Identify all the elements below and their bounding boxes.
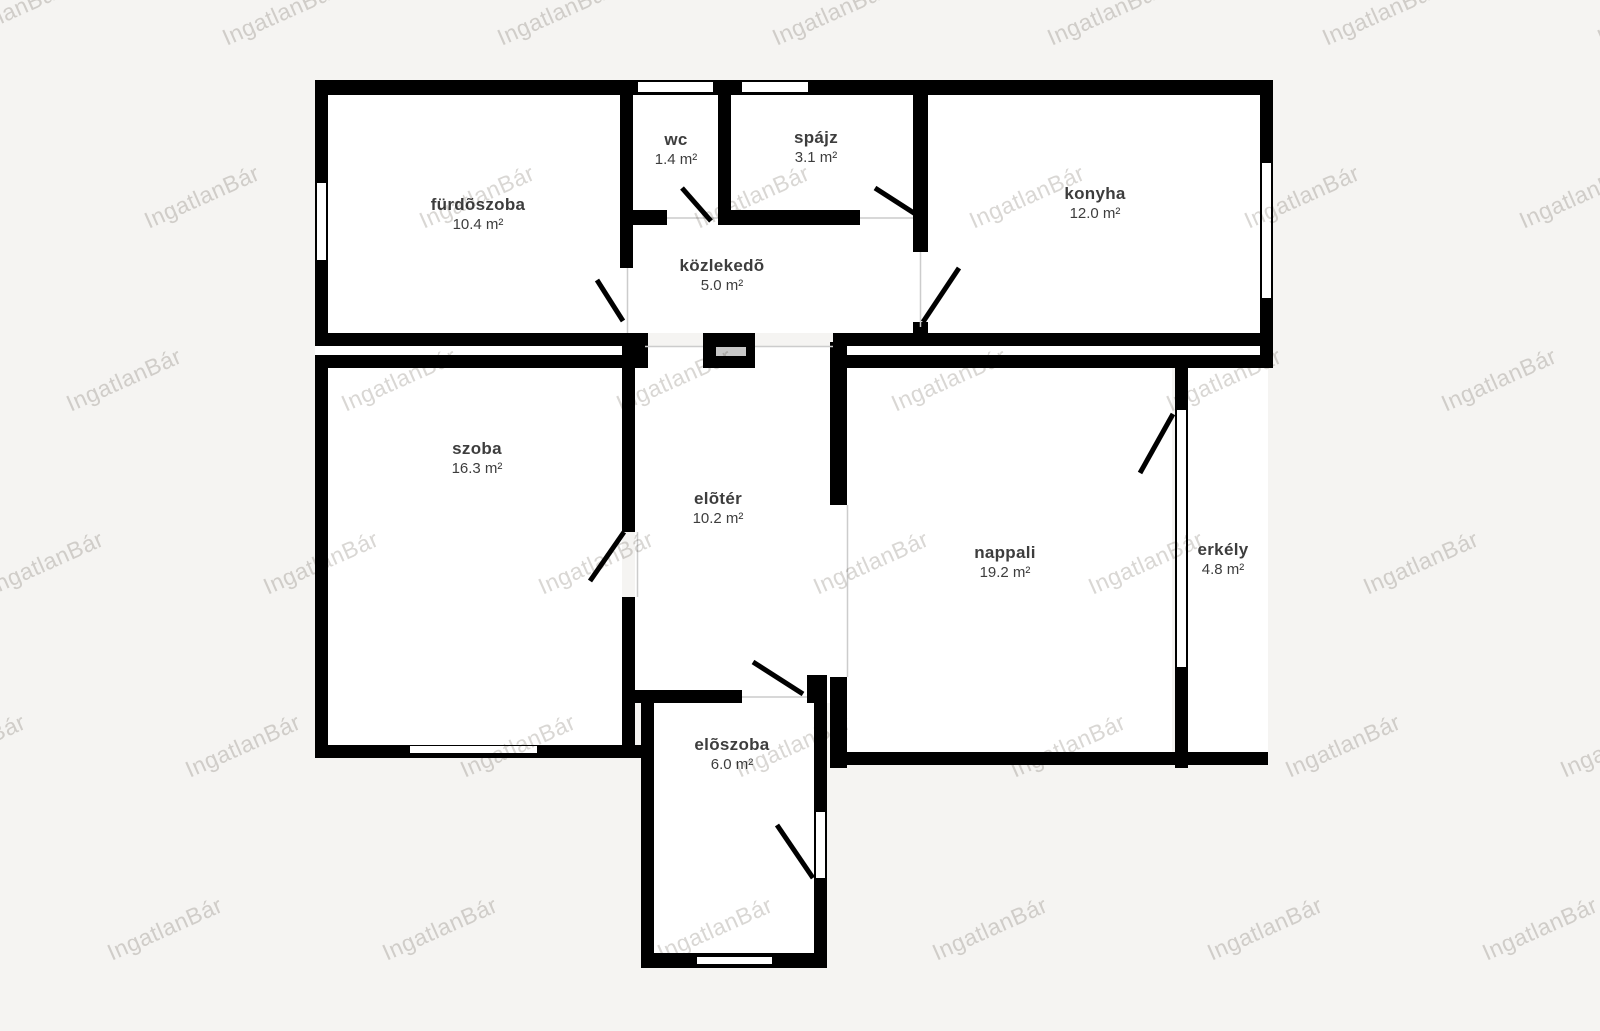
watermark-text: IngatlanBár bbox=[1318, 0, 1441, 51]
room-name: elõszoba bbox=[632, 735, 832, 755]
window-spajz-top bbox=[742, 82, 808, 92]
wall-szoba-top bbox=[315, 355, 648, 368]
wall-furdoszoba-wc bbox=[620, 93, 633, 268]
window-konyha-right bbox=[1262, 163, 1271, 298]
watermark-text: IngatlanBár bbox=[0, 709, 30, 784]
watermark-text: IngatlanBár bbox=[493, 0, 616, 51]
watermark-text: IngatlanBár bbox=[1043, 0, 1166, 51]
wall-wc-bottom-stub bbox=[633, 210, 667, 225]
wall-eloszoba-left bbox=[641, 690, 654, 968]
wall-spajz-bottom bbox=[731, 210, 860, 225]
floorplan-canvas: fürdõszoba 10.4 m² wc 1.4 m² spájz 3.1 m… bbox=[0, 0, 1600, 1031]
watermark-text: IngatlanBár bbox=[140, 160, 263, 235]
room-label-erkely: erkély 4.8 m² bbox=[1123, 540, 1323, 579]
room-label-nappali: nappali 19.2 m² bbox=[905, 543, 1105, 582]
room-name: szoba bbox=[377, 439, 577, 459]
room-name: konyha bbox=[995, 184, 1195, 204]
room-name: spájz bbox=[716, 128, 916, 148]
window-wc-top bbox=[638, 82, 713, 92]
wall-nappali-erkely-top bbox=[830, 355, 1268, 368]
room-label-konyha: konyha 12.0 m² bbox=[995, 184, 1195, 223]
room-label-kozlekedo: közlekedõ 5.0 m² bbox=[622, 256, 822, 295]
room-label-spajz: spájz 3.1 m² bbox=[716, 128, 916, 167]
wall-szoba-left bbox=[315, 355, 328, 758]
watermark-text: IngatlanBár bbox=[181, 709, 304, 784]
room-name: közlekedõ bbox=[622, 256, 822, 276]
room-area: 5.0 m² bbox=[622, 276, 822, 295]
watermark-text: IngatlanBár bbox=[378, 892, 501, 967]
watermark-text: IngatlanBár bbox=[0, 0, 67, 51]
room-label-eloszoba: elõszoba 6.0 m² bbox=[632, 735, 832, 774]
room-area: 10.2 m² bbox=[618, 509, 818, 528]
wall-szoba-right-lower bbox=[622, 597, 635, 758]
watermark-text: IngatlanBár bbox=[1203, 892, 1326, 967]
watermark-text: IngatlanBár bbox=[62, 343, 185, 418]
room-area: 3.1 m² bbox=[716, 148, 916, 167]
room-area: 10.4 m² bbox=[378, 215, 578, 234]
room-fill-szoba bbox=[328, 368, 622, 745]
window-eloszoba-bottom bbox=[697, 957, 772, 964]
room-area: 4.8 m² bbox=[1123, 560, 1323, 579]
room-name: erkély bbox=[1123, 540, 1323, 560]
room-area: 19.2 m² bbox=[905, 563, 1105, 582]
room-label-eloter: elõtér 10.2 m² bbox=[618, 489, 818, 528]
shaft-slot bbox=[716, 347, 746, 356]
wall-nappali-erkely-bottom bbox=[830, 752, 1268, 765]
room-name: fürdõszoba bbox=[378, 195, 578, 215]
wall-konyha-left-stub bbox=[913, 322, 928, 346]
watermark-text: IngatlanBár bbox=[1478, 892, 1600, 967]
room-label-szoba: szoba 16.3 m² bbox=[377, 439, 577, 478]
window-szoba-bottom bbox=[410, 746, 537, 753]
wall-topband-bottom-right bbox=[833, 333, 1273, 346]
room-area: 16.3 m² bbox=[377, 459, 577, 478]
watermark-text: IngatlanBár bbox=[218, 0, 341, 51]
room-name: nappali bbox=[905, 543, 1105, 563]
room-label-furdoszoba: fürdõszoba 10.4 m² bbox=[378, 195, 578, 234]
watermark-text: IngatlanBár bbox=[1281, 709, 1404, 784]
window-furdoszoba-left bbox=[317, 183, 326, 260]
entry-door-panel bbox=[816, 812, 825, 878]
watermark-text: IngatlanBár bbox=[1437, 343, 1560, 418]
room-area: 12.0 m² bbox=[995, 204, 1195, 223]
watermark-text: IngatlanBár bbox=[1556, 709, 1600, 784]
watermark-text: IngatlanBár bbox=[1515, 160, 1600, 235]
wall-topband-bottom-left bbox=[315, 333, 645, 346]
watermark-text: IngatlanBár bbox=[928, 892, 1051, 967]
room-area: 6.0 m² bbox=[632, 755, 832, 774]
watermark-text: IngatlanBár bbox=[768, 0, 891, 51]
room-name: elõtér bbox=[618, 489, 818, 509]
wall-konyha-left-upper bbox=[913, 93, 928, 252]
wall-eloszoba-corner-block bbox=[807, 675, 827, 703]
watermark-text: IngatlanBár bbox=[1593, 0, 1600, 51]
watermark-text: IngatlanBár bbox=[1359, 526, 1482, 601]
watermark-text: IngatlanBár bbox=[103, 892, 226, 967]
watermark-text: IngatlanBár bbox=[0, 526, 108, 601]
balcony-door-glass bbox=[1177, 410, 1186, 667]
